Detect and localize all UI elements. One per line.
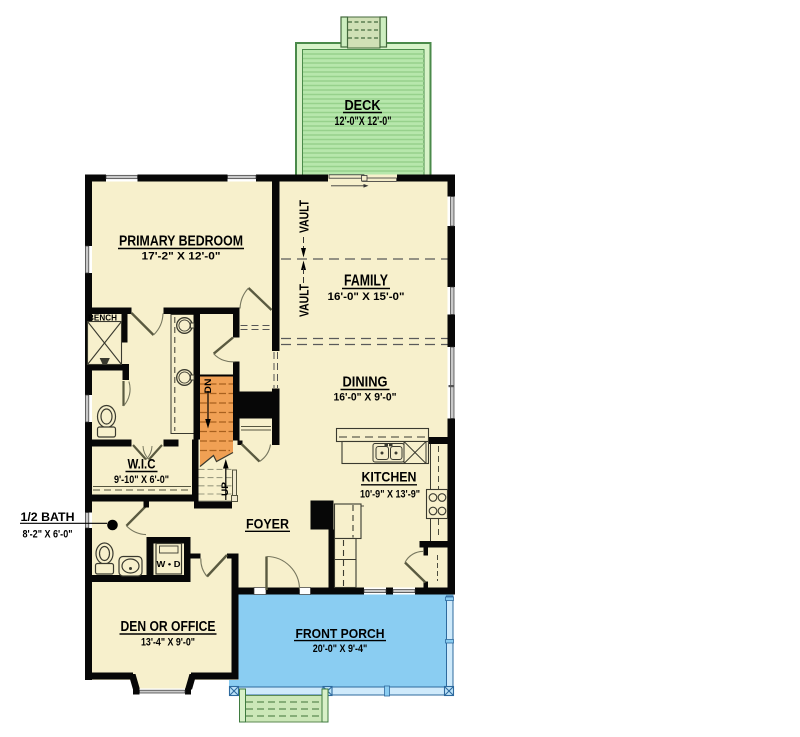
svg-text:17'-2" X 12'-0": 17'-2" X 12'-0" — [142, 251, 221, 263]
svg-text:PRIMARY BEDROOM: PRIMARY BEDROOM — [119, 234, 243, 250]
svg-text:FAMILY: FAMILY — [344, 273, 389, 290]
svg-text:W.I.C: W.I.C — [128, 457, 156, 472]
svg-text:1/2 BATH: 1/2 BATH — [21, 512, 75, 524]
svg-text:BENCH: BENCH — [88, 313, 117, 323]
svg-text:10'-9" X 13'-9": 10'-9" X 13'-9" — [360, 488, 420, 500]
svg-text:VAULT: VAULT — [298, 200, 312, 233]
svg-text:KITCHEN: KITCHEN — [362, 470, 417, 485]
svg-text:FRONT PORCH: FRONT PORCH — [296, 626, 385, 641]
svg-text:20'-0" X 9'-4": 20'-0" X 9'-4" — [313, 643, 368, 655]
svg-text:DECK: DECK — [345, 98, 382, 114]
svg-text:FOYER: FOYER — [246, 516, 289, 531]
svg-text:VAULT: VAULT — [298, 284, 312, 317]
svg-text:12'-0"X 12'-0": 12'-0"X 12'-0" — [335, 114, 392, 128]
svg-text:DINING: DINING — [343, 374, 388, 391]
svg-text:W • D: W • D — [157, 559, 181, 569]
svg-text:16'-0" X 15'-0": 16'-0" X 15'-0" — [328, 291, 405, 303]
svg-text:DN: DN — [203, 378, 214, 393]
svg-text:UP: UP — [220, 481, 231, 496]
svg-text:9'-10" X 6'-0": 9'-10" X 6'-0" — [114, 474, 169, 486]
svg-text:DEN OR OFFICE: DEN OR OFFICE — [121, 619, 216, 635]
svg-text:8'-2" X 6'-0": 8'-2" X 6'-0" — [23, 529, 73, 541]
svg-text:16'-0" X 9'-0": 16'-0" X 9'-0" — [334, 392, 397, 404]
svg-text:13'-4" X 9'-0": 13'-4" X 9'-0" — [141, 637, 195, 649]
